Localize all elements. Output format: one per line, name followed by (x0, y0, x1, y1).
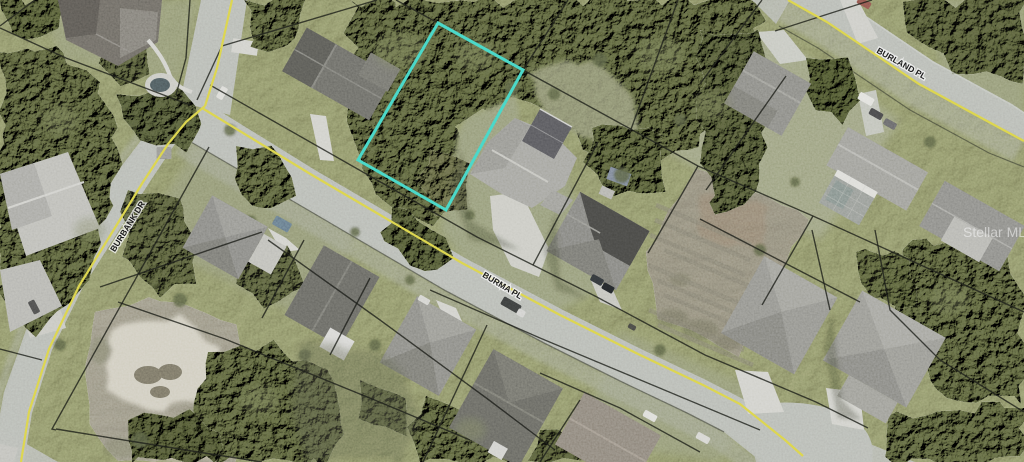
svg-text:Stellar MLS: Stellar MLS (963, 224, 1024, 240)
